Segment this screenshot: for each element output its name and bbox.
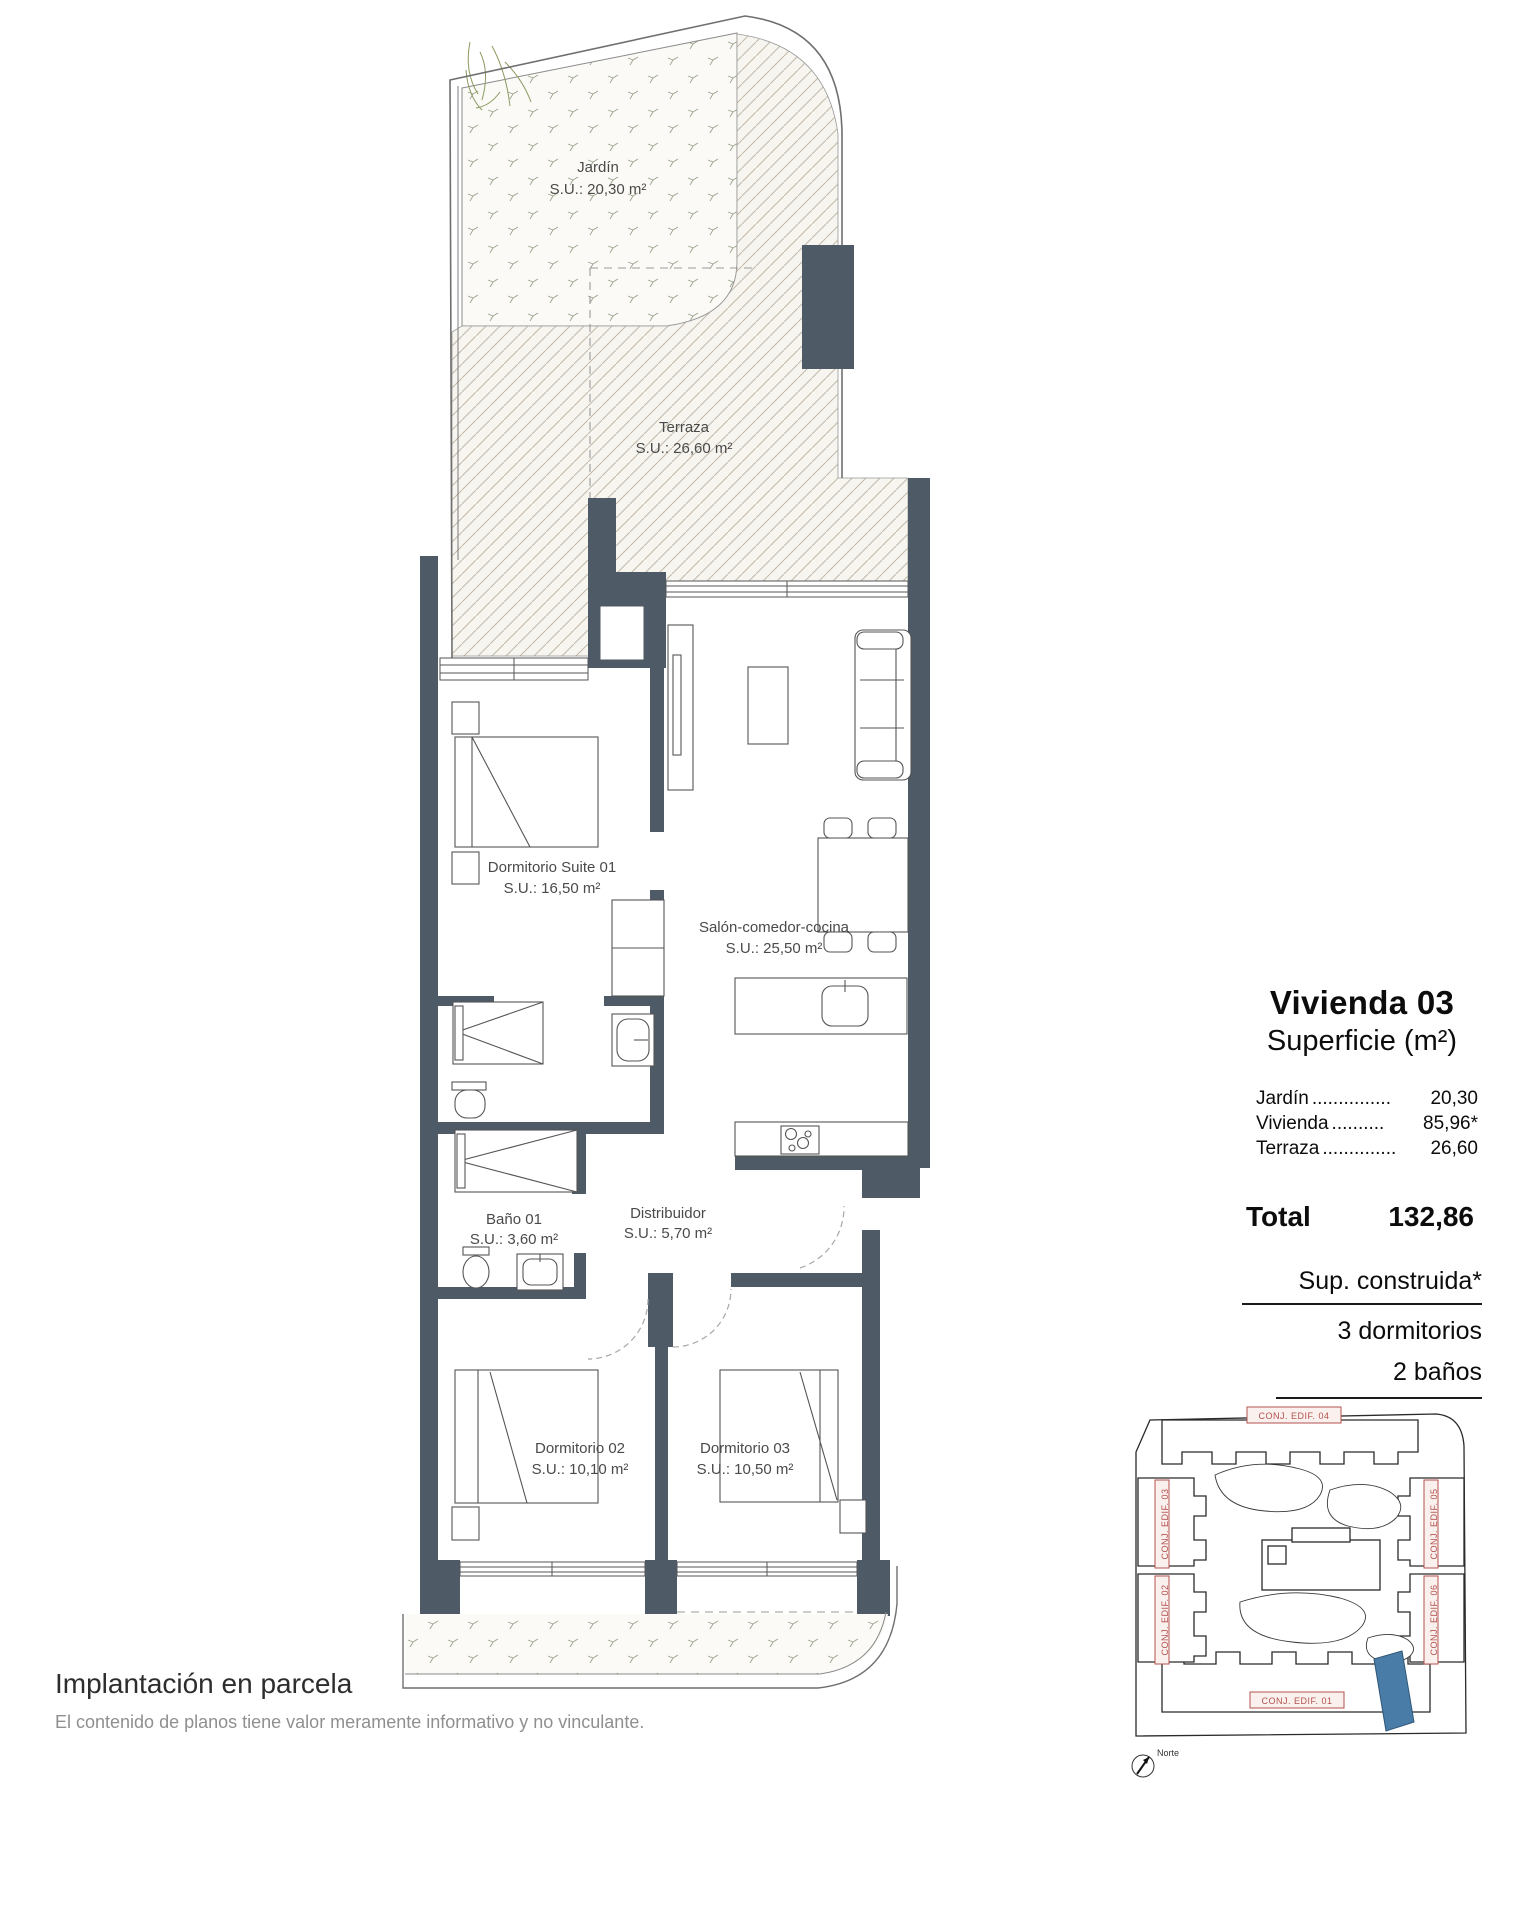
surface-row-vivienda: Vivienda .......... 85,96* (1256, 1111, 1478, 1136)
coffee-table (748, 667, 788, 744)
garden-area (462, 33, 737, 326)
room-label-jardin: Jardín (577, 159, 619, 176)
svg-text:S.U.: 20,30 m²: S.U.: 20,30 m² (550, 181, 647, 198)
unit-title: Vivienda 03 (1242, 984, 1482, 1022)
footer-title: Implantación en parcela (55, 1668, 352, 1700)
surface-rows: Jardín ............... 20,30 Vivienda ..… (1242, 1086, 1482, 1161)
footer-disclaimer: El contenido de planos tiene valor meram… (55, 1712, 644, 1733)
wardrobe (455, 1130, 577, 1192)
room-label-salon: Salón-comedor-cocina (699, 919, 850, 936)
map-label-edif01: CONJ. EDIF. 01 (1261, 1696, 1332, 1706)
room-label-distribuidor: Distribuidor (630, 1205, 706, 1222)
toilet (463, 1247, 489, 1255)
north-label: Norte (1157, 1748, 1179, 1758)
total-value: 132,86 (1388, 1201, 1474, 1233)
map-label-edif03: CONJ. EDIF. 03 (1160, 1488, 1170, 1559)
info-panel: Vivienda 03 Superficie (m²) Jardín .....… (1242, 984, 1482, 1399)
note-bedrooms: 3 dormitorios (1242, 1317, 1482, 1346)
chair (868, 818, 896, 838)
north-arrow-icon: Norte (1132, 1748, 1179, 1777)
surface-row-terraza: Terraza .............. 26,60 (1256, 1136, 1478, 1161)
svg-text:S.U.: 10,50 m²: S.U.: 10,50 m² (697, 1461, 794, 1478)
total-row: Total 132,86 (1242, 1201, 1482, 1233)
kitchen-counter (735, 1122, 908, 1156)
kitchen-island (735, 978, 907, 1034)
nightstand (452, 1507, 479, 1540)
total-label: Total (1246, 1201, 1311, 1233)
wall-niche (600, 606, 644, 660)
svg-text:S.U.: 3,60 m²: S.U.: 3,60 m² (470, 1231, 558, 1248)
nightstand (840, 1500, 866, 1533)
chair (824, 818, 852, 838)
room-label-suite: Dormitorio Suite 01 (488, 859, 616, 876)
room-label-dorm2: Dormitorio 02 (535, 1440, 625, 1457)
sofa (855, 630, 911, 780)
built-surface-note: Sup. construida* 3 dormitorios 2 baños (1242, 1267, 1482, 1399)
floor-plan-canvas: Jardín S.U.: 20,30 m² Terraza S.U.: 26,6… (0, 0, 1537, 1920)
chair (868, 932, 896, 952)
wardrobe (453, 1002, 543, 1064)
map-label-edif04: CONJ. EDIF. 04 (1258, 1411, 1329, 1421)
svg-text:S.U.: 16,50 m²: S.U.: 16,50 m² (504, 880, 601, 897)
room-label-dorm3: Dormitorio 03 (700, 1440, 790, 1457)
surface-row-jardin: Jardín ............... 20,30 (1256, 1086, 1478, 1111)
room-label-terraza: Terraza (659, 419, 710, 436)
svg-text:S.U.: 26,60 m²: S.U.: 26,60 m² (636, 440, 733, 457)
bed-suite (455, 737, 598, 847)
toilet (452, 1082, 486, 1090)
site-plan: CONJ. EDIF. 04 CONJ. EDIF. 01 CONJ. EDIF… (1132, 1407, 1466, 1777)
note-title: Sup. construida* (1242, 1267, 1482, 1305)
room-label-bano: Baño 01 (486, 1211, 542, 1228)
map-label-edif02: CONJ. EDIF. 02 (1160, 1584, 1170, 1655)
bed (455, 1370, 598, 1503)
note-bathrooms: 2 baños (1276, 1358, 1482, 1399)
map-label-edif05: CONJ. EDIF. 05 (1429, 1488, 1439, 1559)
nightstand (452, 702, 479, 734)
surface-subtitle: Superficie (m²) (1242, 1025, 1482, 1058)
svg-text:S.U.: 10,10 m²: S.U.: 10,10 m² (532, 1461, 629, 1478)
dining-table (818, 838, 908, 932)
nightstand (452, 852, 479, 884)
svg-text:S.U.: 25,50 m²: S.U.: 25,50 m² (726, 940, 823, 957)
map-label-edif06: CONJ. EDIF. 06 (1429, 1584, 1439, 1655)
svg-text:S.U.: 5,70 m²: S.U.: 5,70 m² (624, 1225, 712, 1242)
